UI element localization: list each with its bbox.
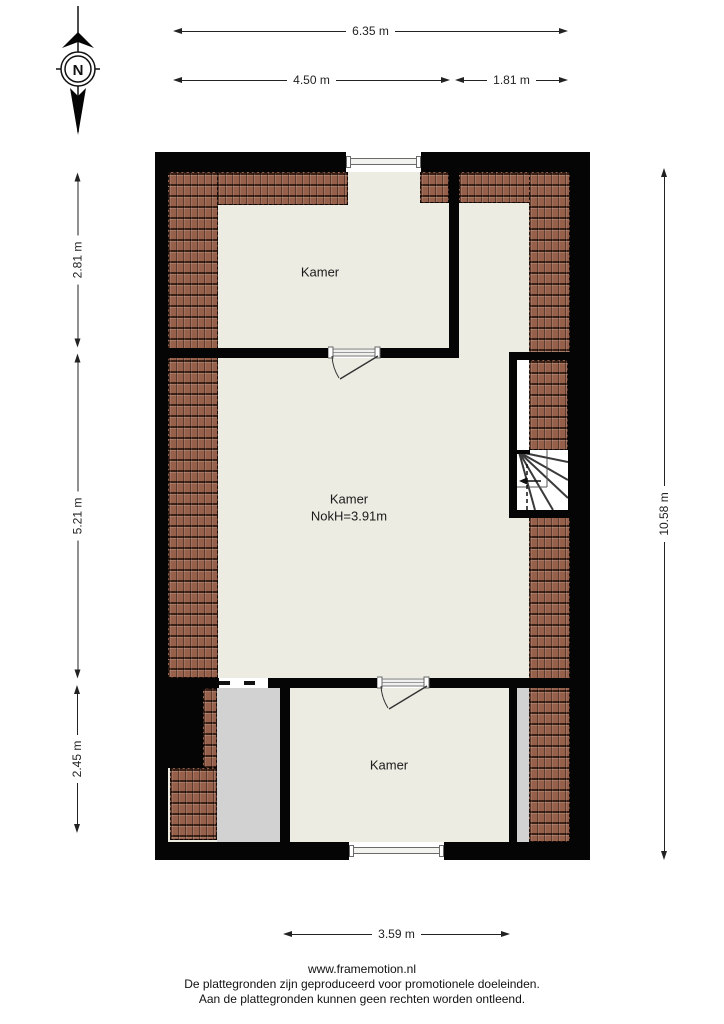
room-label-bottom: Kamer xyxy=(370,758,408,773)
stairs-icon xyxy=(517,450,568,510)
room-label-top: Kamer xyxy=(301,265,339,280)
dim-label: 4.50 m xyxy=(287,73,336,87)
arrow-right-icon xyxy=(441,77,450,83)
roof-slope-top-right xyxy=(459,172,530,203)
dim-left-middle: 5.21 m xyxy=(67,353,87,678)
dim-left-top: 2.81 m xyxy=(67,172,87,347)
arrow-right-icon xyxy=(559,28,568,34)
window-cap xyxy=(416,156,421,168)
dim-label: 6.35 m xyxy=(346,24,395,38)
dim-label: 2.45 m xyxy=(70,735,84,784)
roof-slope-over-stairs xyxy=(529,360,568,450)
arrow-right-icon xyxy=(559,77,568,83)
arrow-down-icon xyxy=(74,338,80,347)
arrow-left-icon xyxy=(455,77,464,83)
arrow-left-icon xyxy=(173,77,182,83)
window-glazing xyxy=(354,847,439,854)
arrow-up-icon xyxy=(661,168,667,177)
footer-website: www.framemotion.nl xyxy=(0,962,724,977)
storage-zone-left xyxy=(217,688,280,842)
door-bottom xyxy=(377,676,431,714)
room-label-middle: Kamer xyxy=(330,492,368,507)
wall-mid-left xyxy=(155,348,328,358)
door-icon xyxy=(377,676,431,714)
storage-zone-right xyxy=(517,688,529,842)
roof-slope-bottom-left xyxy=(170,768,217,840)
window-bottom xyxy=(349,842,444,860)
dim-label: 2.81 m xyxy=(70,235,84,284)
roof-slope-top-mid xyxy=(420,172,449,203)
wall-bottom-room-left xyxy=(280,678,290,842)
wall-mid-right xyxy=(380,348,459,358)
dim-label: 5.21 m xyxy=(70,491,84,540)
dim-top-right: 1.81 m xyxy=(455,70,568,90)
compass-north-label: N xyxy=(73,62,84,79)
roof-slope-bottom-left-narrow xyxy=(203,688,217,768)
footer-disclaimer-2: Aan de plattegronden kunnen geen rechten… xyxy=(0,992,724,1007)
window-cap xyxy=(439,845,444,857)
dim-top-total: 6.35 m xyxy=(173,21,568,41)
compass-icon: N xyxy=(40,4,116,136)
arrow-up-icon xyxy=(74,353,80,362)
arrow-down-icon xyxy=(74,824,80,833)
staircase xyxy=(517,450,568,510)
chimney-block xyxy=(163,685,203,768)
dim-top-left: 4.50 m xyxy=(173,70,450,90)
arrow-up-icon xyxy=(74,172,80,181)
footer: www.framemotion.nl De plattegronden zijn… xyxy=(0,962,724,1007)
door-icon xyxy=(328,346,382,384)
wall-bottom-room-right xyxy=(509,678,517,842)
dim-label: 1.81 m xyxy=(487,73,536,87)
window-cap xyxy=(346,156,351,168)
wall-top-vertical xyxy=(449,152,459,358)
footer-disclaimer-1: De plattegronden zijn geproduceerd voor … xyxy=(0,977,724,992)
floorplan-page: N 6.35 m 4.50 m 1.81 m 2.81 m 5.21 m 2.4… xyxy=(0,0,724,1024)
arrow-right-icon xyxy=(501,931,510,937)
window-glazing xyxy=(351,158,416,165)
dim-right-total: 10.58 m xyxy=(654,168,674,860)
room-ridge-height: NokH=3.91m xyxy=(311,509,387,524)
arrow-left-icon xyxy=(283,931,292,937)
arrow-up-icon xyxy=(74,685,80,694)
dim-bottom: 3.59 m xyxy=(283,924,510,944)
roof-slope-left xyxy=(168,172,218,678)
window-top xyxy=(346,152,421,172)
door-middle xyxy=(328,346,382,384)
wall-opening-dashed xyxy=(219,678,268,688)
arrow-down-icon xyxy=(74,669,80,678)
window-cap xyxy=(349,845,354,857)
dim-label: 10.58 m xyxy=(657,486,671,541)
dim-label: 3.59 m xyxy=(372,927,421,941)
arrow-down-icon xyxy=(661,851,667,860)
arrow-left-icon xyxy=(173,28,182,34)
dim-left-bottom: 2.45 m xyxy=(67,685,87,833)
compass: N xyxy=(40,4,116,136)
